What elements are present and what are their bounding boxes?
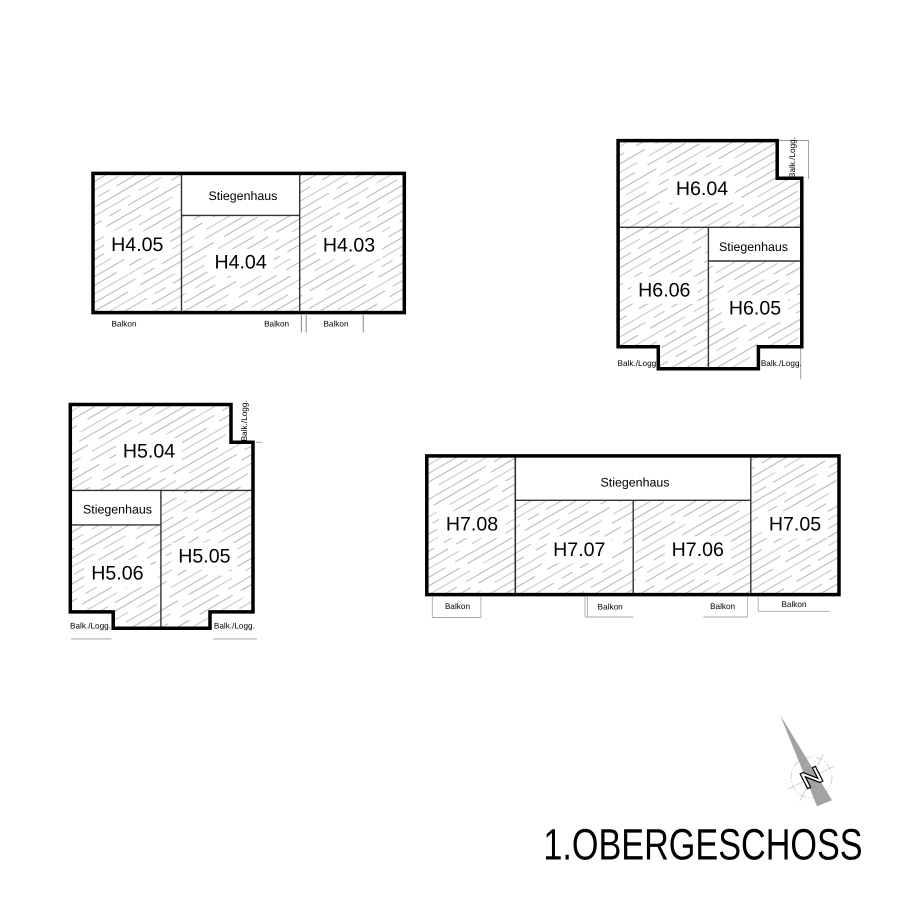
svg-text:H6.06: H6.06 [638,279,690,301]
svg-text:Stiegenhaus: Stiegenhaus [601,476,670,490]
svg-text:Stiegenhaus: Stiegenhaus [83,503,152,517]
svg-text:H4.05: H4.05 [111,234,163,256]
svg-text:Balkon: Balkon [264,319,289,328]
svg-text:H4.03: H4.03 [323,235,375,257]
svg-text:H7.08: H7.08 [446,514,498,536]
svg-text:H7.07: H7.07 [553,539,605,561]
svg-text:Balk./Logg.: Balk./Logg. [70,621,111,630]
svg-text:Balkon: Balkon [323,319,348,328]
svg-text:Balkon: Balkon [111,319,136,328]
svg-text:H5.05: H5.05 [178,545,230,567]
svg-text:Balkon: Balkon [445,602,470,611]
svg-text:Stiegenhaus: Stiegenhaus [208,189,277,203]
svg-text:1.OBERGESCHOSS: 1.OBERGESCHOSS [543,821,862,870]
svg-text:Balk./Logg.: Balk./Logg. [788,137,797,178]
svg-text:Balk./Logg.: Balk./Logg. [618,359,659,368]
svg-text:Balk./Logg.: Balk./Logg. [761,359,802,368]
svg-text:Balkon: Balkon [781,600,806,609]
svg-text:Balk./Logg.: Balk./Logg. [214,621,255,630]
svg-text:H6.05: H6.05 [729,298,781,320]
svg-text:Balkon: Balkon [598,603,623,612]
svg-text:H5.06: H5.06 [91,563,143,585]
svg-text:H7.06: H7.06 [672,539,724,561]
svg-text:Balkon: Balkon [710,602,735,611]
svg-text:Stiegenhaus: Stiegenhaus [719,240,788,254]
svg-text:H5.04: H5.04 [123,441,175,463]
svg-text:H6.04: H6.04 [676,178,728,200]
svg-text:Balk./Logg.: Balk./Logg. [240,400,249,441]
svg-text:H7.05: H7.05 [769,514,821,536]
svg-text:H4.04: H4.04 [214,251,266,273]
